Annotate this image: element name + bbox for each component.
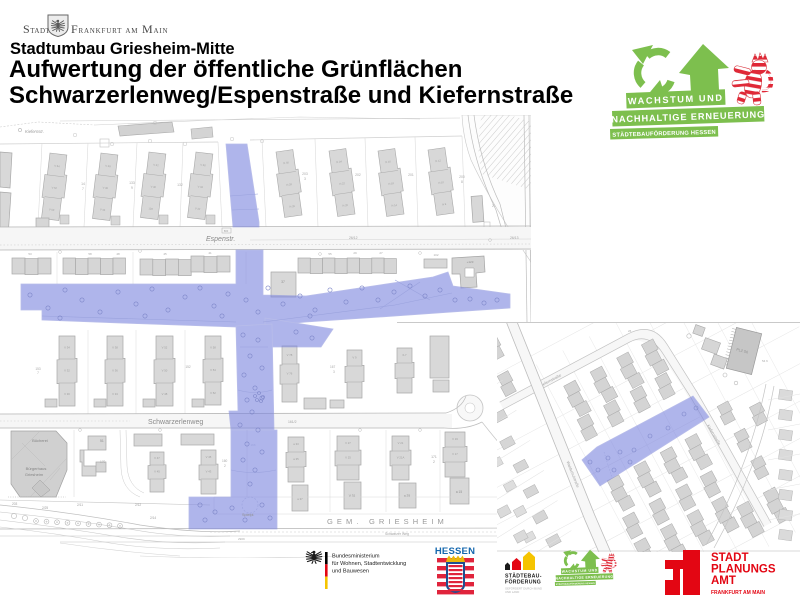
svg-text:V 31: V 31 [349,494,356,498]
svg-text:a 15: a 15 [456,490,462,494]
svg-text:Schwarzer Weg: Schwarzer Weg [385,532,409,536]
svg-text:für Wohnen, Stadtentwicklung: für Wohnen, Stadtentwicklung [332,561,406,567]
svg-text:V 52: V 52 [162,346,168,350]
svg-text:V 30: V 30 [64,392,70,396]
svg-text:201: 201 [408,173,414,177]
svg-text:Bücherei: Bücherei [32,438,48,443]
svg-text:167: 167 [330,365,336,369]
svg-text:160: 160 [222,459,228,463]
svg-text:UND LAND: UND LAND [505,590,519,594]
svg-text:Espenstr.: Espenstr. [206,236,235,243]
svg-text:PLANUNGS: PLANUNGS [711,564,776,576]
svg-text:132: 132 [177,183,183,187]
svg-text:54 6: 54 6 [762,359,768,363]
svg-text:V 45: V 45 [206,455,212,459]
svg-text:V 43: V 43 [206,469,212,473]
svg-text:V 17: V 17 [452,452,458,456]
svg-text:133: 133 [129,181,135,185]
svg-text:26/12: 26/12 [349,236,358,240]
svg-text:AMT: AMT [711,575,736,587]
svg-text:53: 53 [28,252,32,256]
svg-text:V 78: V 78 [287,353,293,357]
svg-text:170: 170 [100,460,106,464]
svg-text:und Bauwesen: und Bauwesen [332,569,369,575]
svg-text:V 25: V 25 [345,455,351,459]
svg-text:2/11: 2/11 [77,503,83,507]
svg-text:102: 102 [433,253,438,257]
svg-text:Schwarzerlenweg: Schwarzerlenweg [148,419,203,426]
svg-text:HESSEN: HESSEN [435,546,475,557]
svg-text:7: 7 [37,371,39,375]
svg-text:171: 171 [431,455,437,459]
svg-text:29: 29 [353,251,357,255]
svg-text:a 33: a 33 [293,442,299,446]
svg-text:14: 14 [81,182,85,186]
svg-text:V 50: V 50 [162,369,168,373]
svg-text:202: 202 [355,173,361,177]
svg-text:a 35: a 35 [293,457,299,461]
svg-text:STÄDTEBAU-: STÄDTEBAU- [505,573,542,580]
svg-text:2: 2 [433,460,435,464]
svg-text:V 27: V 27 [345,441,351,445]
svg-text:3: 3 [333,370,335,374]
svg-text:V 19: V 19 [452,437,458,441]
svg-text:Spielpl.: Spielpl. [242,513,254,517]
svg-text:V 34: V 34 [64,346,70,350]
svg-text:3: 3 [304,177,306,181]
svg-text:V 52: V 52 [210,391,216,395]
svg-text:Bürgerhaus: Bürgerhaus [26,466,47,471]
svg-text:27: 27 [379,251,383,255]
svg-text:FÖRDERUNG: FÖRDERUNG [505,579,541,586]
svg-text:58: 58 [88,252,92,256]
svg-text:+123: +123 [467,260,474,264]
svg-text:V 58: V 58 [210,345,216,349]
svg-text:V 47: V 47 [154,456,160,460]
svg-text:V 54: V 54 [210,368,216,372]
svg-text:7: 7 [82,187,84,191]
svg-text:V 21A: V 21A [397,455,405,459]
svg-text:V 9: V 9 [352,356,357,360]
svg-text:a 25: a 25 [404,494,410,498]
svg-text:55: 55 [328,252,332,256]
svg-text:V 34: V 34 [112,392,118,396]
svg-text:45: 45 [163,252,167,256]
svg-text:203: 203 [302,172,308,176]
svg-text:800: 800 [224,229,229,233]
svg-text:161/2: 161/2 [288,420,297,424]
svg-text:9: 9 [131,186,133,190]
svg-text:2: 2 [224,464,226,468]
svg-text:26/13: 26/13 [510,236,519,240]
svg-text:2/25: 2/25 [42,506,48,510]
svg-text:2/14: 2/14 [150,516,156,520]
svg-text:V 38: V 38 [112,346,118,350]
svg-text:V 45: V 45 [154,469,160,473]
svg-text:2909: 2909 [238,537,245,541]
svg-text:152: 152 [185,365,191,369]
svg-text:51: 51 [100,439,104,443]
svg-text:8: 8 [461,180,463,184]
svg-text:166: 166 [250,443,255,447]
svg-text:G R I E S H E I M: G R I E S H E I M [369,517,445,526]
svg-text:V 36: V 36 [112,369,118,373]
svg-text:Griesheim: Griesheim [25,472,44,477]
svg-text:STADT: STADT [711,552,748,564]
svg-text:200: 200 [459,175,465,179]
svg-text:G E M .: G E M . [327,517,359,526]
svg-text:6-7: 6-7 [402,353,406,357]
svg-text:a 37: a 37 [297,497,303,501]
svg-text:48: 48 [116,252,120,256]
svg-text:V 76: V 76 [287,372,293,376]
svg-text:FRANKFURT AM MAIN: FRANKFURT AM MAIN [711,590,765,596]
svg-text:2/12: 2/12 [135,503,141,507]
svg-text:203: 203 [12,502,18,506]
svg-text:Kiefernstr.: Kiefernstr. [25,129,44,134]
svg-text:37: 37 [281,280,285,284]
svg-text:41: 41 [208,251,212,255]
svg-text:V 21: V 21 [398,441,404,445]
svg-text:V 48: V 48 [162,392,168,396]
svg-text:Bundesministerium: Bundesministerium [332,554,380,560]
svg-text:V 32: V 32 [64,369,70,373]
svg-text:26: 26 [628,329,632,333]
